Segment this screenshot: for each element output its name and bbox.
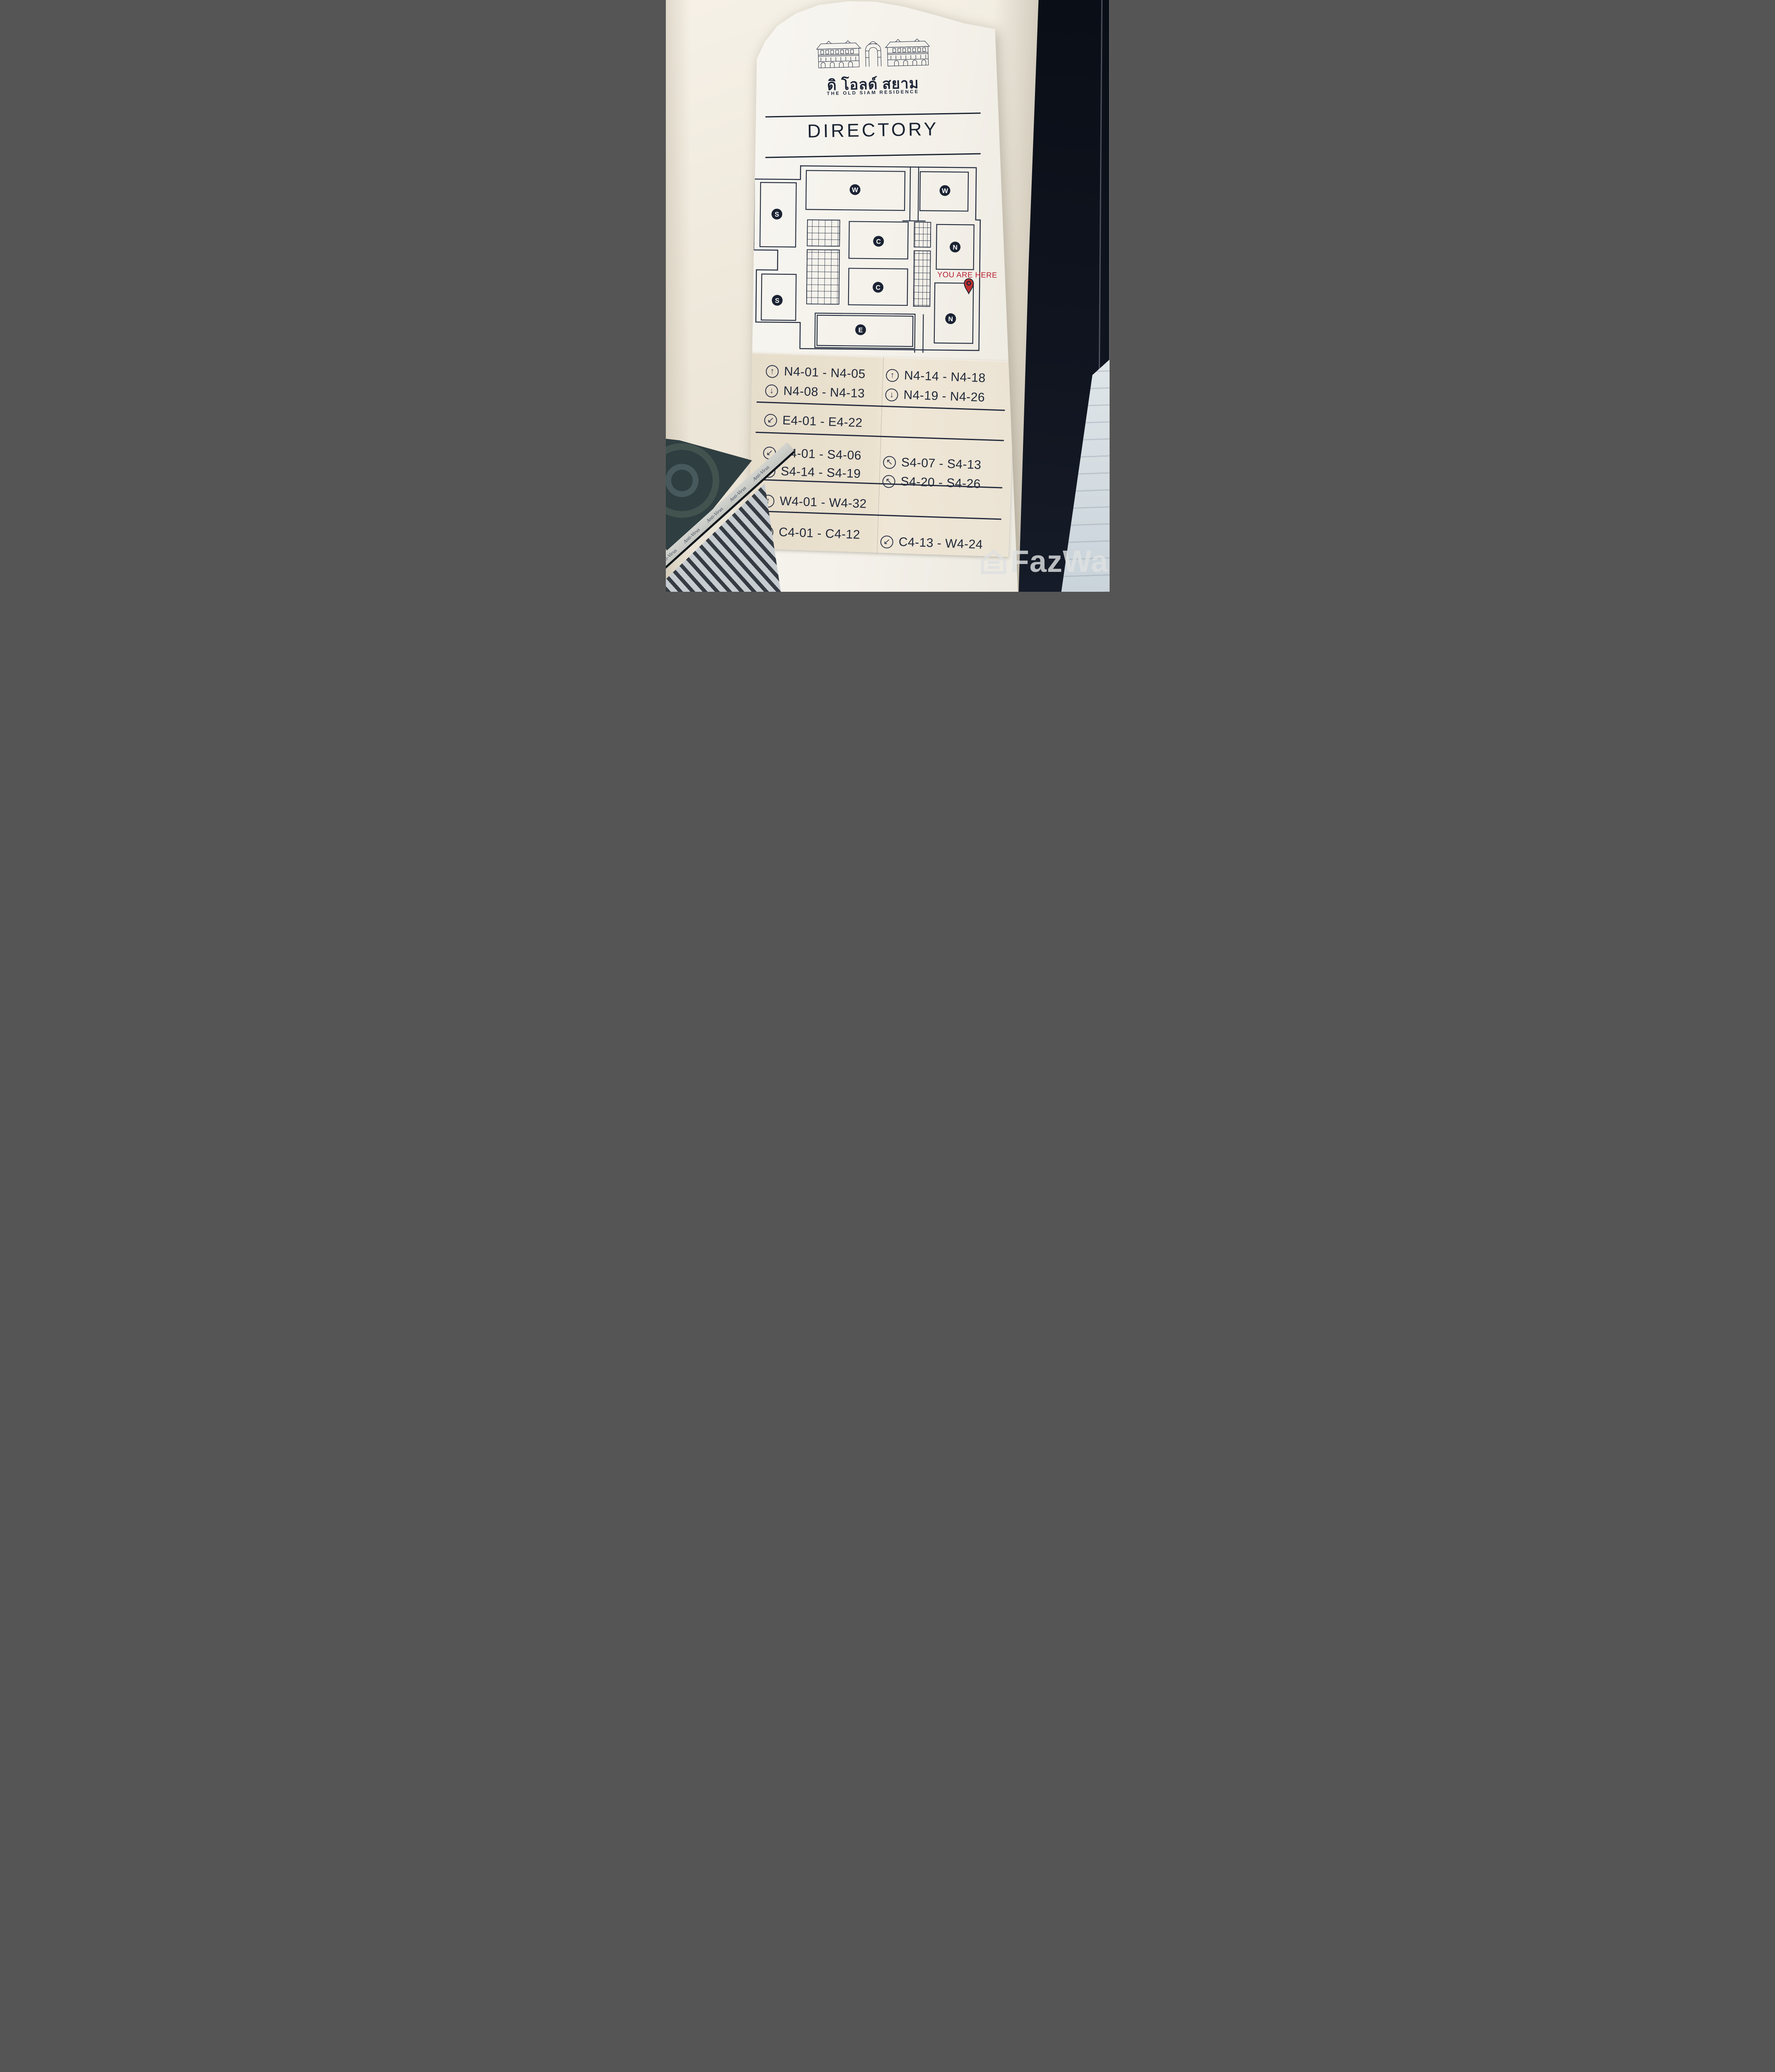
zone-label-e: E [858,327,863,334]
photo-of-directory-sign: ดิ โอลด์ สยาม THE OLD SIAM RESIDENCE DIR… [666,0,1110,592]
listing-entry: ↓ N4-19 - N4-26 [885,387,985,405]
unit-range-label: S4-07 - S4-13 [901,455,981,472]
unit-range-label: N4-01 - N4-05 [784,365,866,381]
unit-range-label: N4-14 - N4-18 [904,369,986,385]
stall-grid-right [913,222,931,306]
listing-entry: ↓ N4-08 - N4-13 [765,383,865,401]
arrow-down-icon: ↓ [885,388,898,402]
stall-grid-left [806,220,839,304]
arrow-down-left-icon: ↙ [880,535,893,548]
unit-range-label: S4-14 - S4-19 [780,465,861,481]
watermark: FazWaz [980,544,1110,579]
block-north-lower [934,283,973,344]
zone-label-w2: W [941,188,948,195]
zone-label-c1: C [876,238,881,245]
arrow-up-left-icon: ↖ [883,455,896,469]
listing-entry: ↑ N4-14 - N4-18 [885,368,986,385]
directory-sign: ดิ โอลด์ สยาม THE OLD SIAM RESIDENCE DIR… [742,0,1020,592]
arrow-up-left-icon: ↖ [882,474,895,488]
zone-label-w1: W [851,187,858,194]
listing-entry: ↖ S4-20 - S4-26 [882,474,981,491]
you-are-here-pin [964,278,973,293]
arrow-up-icon: ↑ [885,369,899,382]
panel-divider [755,432,1004,441]
film-label: Anti-Virus [728,485,747,503]
unit-range-label: E4-01 - E4-22 [782,414,862,430]
film-label: Anti-Virus [751,464,771,482]
unit-range-label: C4-13 - W4-24 [898,535,983,552]
foreground-furniture: Anti-Virus Anti-Virus Anti-Virus Anti-Vi… [666,437,781,592]
listing-entry: ↙ C4-13 - W4-24 [880,535,983,552]
arrow-down-left-icon: ↙ [764,414,777,427]
zone-label-s1: S [774,211,779,218]
zone-label-n1: N [953,244,958,251]
unit-range-label: S4-01 - S4-06 [781,446,861,463]
listing-entry: ↙ E4-01 - E4-22 [764,413,862,430]
house-icon [980,548,1007,575]
directory-heading: DIRECTORY [742,117,1004,143]
panel-divider [753,511,1001,520]
heading-rule-top [765,112,981,117]
unit-range-label: S4-20 - S4-26 [900,474,981,491]
listing-entry: ↖ S4-07 - S4-13 [883,455,981,472]
old-siam-building-logo-illustration [816,36,930,69]
watermark-text: FazWaz [1011,544,1110,579]
arrow-up-icon: ↑ [765,365,779,378]
panel-sheet-seam [876,357,884,553]
you-are-here-label: YOU ARE HERE [937,270,997,280]
listing-entry: ↑ N4-01 - N4-05 [765,364,866,381]
zone-label-n2: N [948,316,953,323]
unit-range-label: W4-01 - W4-32 [779,494,867,511]
zone-label-c2: C [875,284,880,291]
zone-label-s2: S [775,298,779,305]
unit-range-label: C4-01 - C4-12 [778,525,860,542]
floor-plan-map: W W S C N S C N E YOU ARE HERE [733,155,1008,354]
arrow-down-icon: ↓ [765,384,778,397]
unit-range-label: N4-08 - N4-13 [783,384,865,401]
unit-range-label: N4-19 - N4-26 [903,388,985,404]
